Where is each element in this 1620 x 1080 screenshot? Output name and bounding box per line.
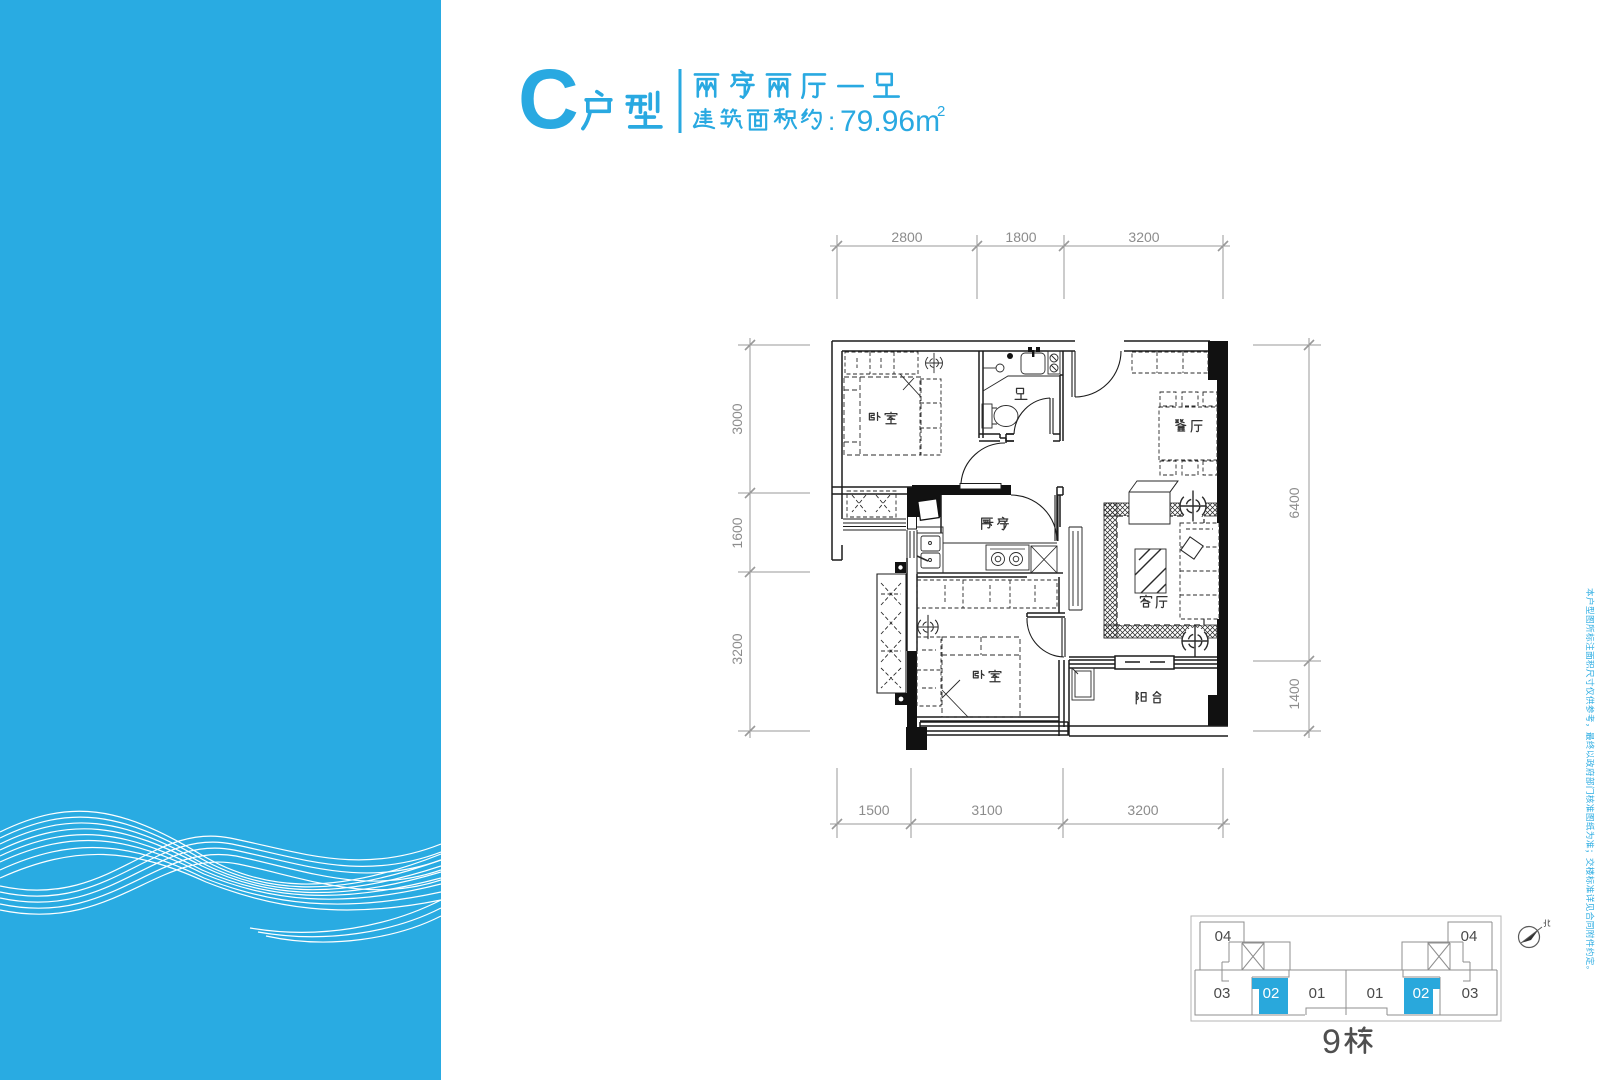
svg-text:03: 03 xyxy=(1462,985,1479,1002)
svg-text:3200: 3200 xyxy=(1127,802,1158,818)
svg-text:04: 04 xyxy=(1215,928,1232,945)
svg-text:04: 04 xyxy=(1461,928,1478,945)
svg-text:1500: 1500 xyxy=(858,802,889,818)
svg-text:01: 01 xyxy=(1309,985,1326,1002)
svg-text:3000: 3000 xyxy=(729,403,745,434)
svg-text:本户型图所标注面积尺寸仅供参考，最终以政府部门核准图纸为准；: 本户型图所标注面积尺寸仅供参考，最终以政府部门核准图纸为准；交楼标准详见合同附件… xyxy=(1585,588,1596,975)
svg-text:1600: 1600 xyxy=(729,517,745,548)
svg-text:3200: 3200 xyxy=(1128,229,1159,245)
svg-text:2800: 2800 xyxy=(891,229,922,245)
svg-text:03: 03 xyxy=(1214,985,1231,1002)
svg-text:01: 01 xyxy=(1367,985,1384,1002)
svg-text:1800: 1800 xyxy=(1005,229,1036,245)
svg-text:3100: 3100 xyxy=(971,802,1002,818)
svg-text:9: 9 xyxy=(1322,1023,1341,1061)
svg-text:1400: 1400 xyxy=(1286,678,1302,709)
svg-text:02: 02 xyxy=(1413,985,1430,1002)
svg-text:02: 02 xyxy=(1263,985,1280,1002)
svg-text:6400: 6400 xyxy=(1286,487,1302,518)
svg-text:3200: 3200 xyxy=(729,633,745,664)
